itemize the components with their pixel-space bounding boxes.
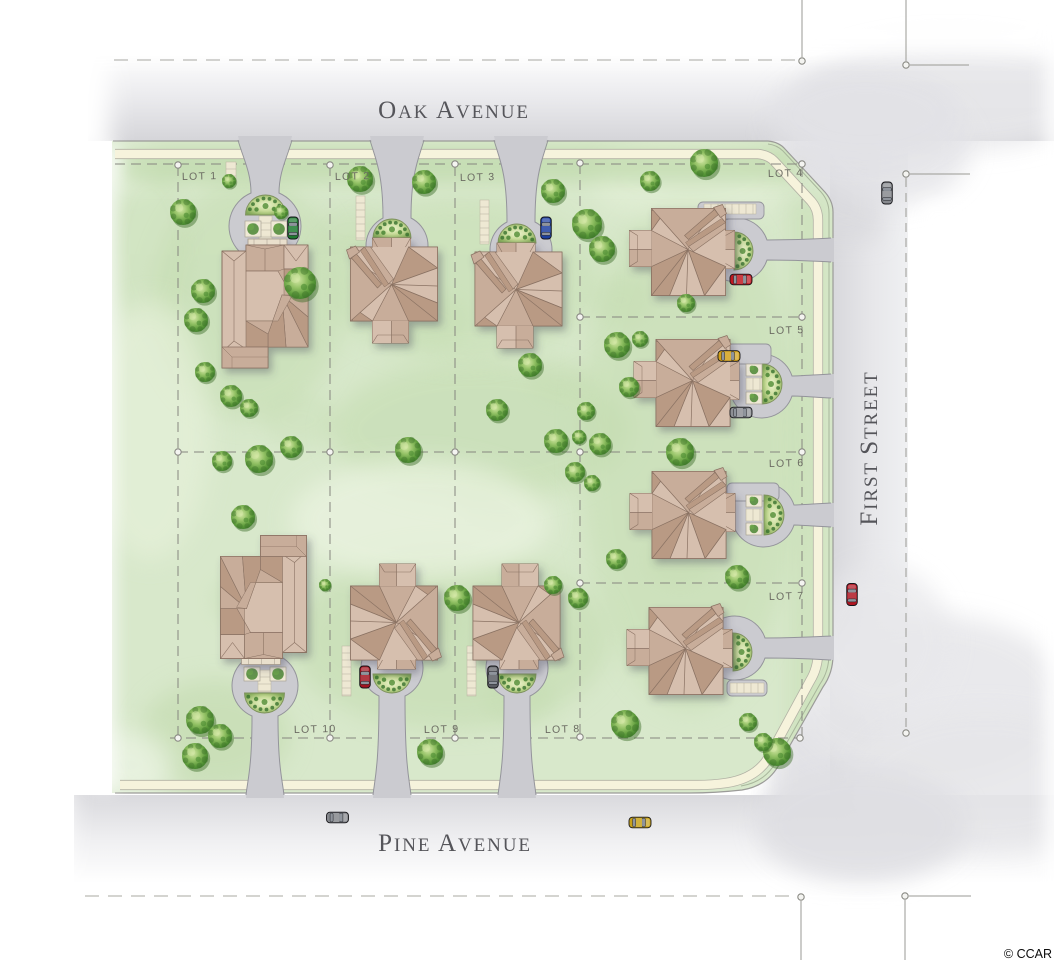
svg-text:LOT 5: LOT 5 <box>769 324 805 337</box>
svg-text:LOT 8: LOT 8 <box>545 723 581 736</box>
svg-text:OAK AVENUE: OAK AVENUE <box>378 97 530 124</box>
svg-text:LOT 1: LOT 1 <box>182 170 218 183</box>
svg-text:FIRST STREET: FIRST STREET <box>856 370 883 525</box>
svg-text:LOT 6: LOT 6 <box>769 457 805 470</box>
svg-text:LOT 7: LOT 7 <box>769 590 805 603</box>
svg-text:LOT 3: LOT 3 <box>460 171 496 184</box>
svg-text:© CCAR: © CCAR <box>1004 947 1052 960</box>
svg-text:PINE AVENUE: PINE AVENUE <box>378 830 532 857</box>
svg-text:LOT 10: LOT 10 <box>294 723 337 736</box>
svg-text:LOT 9: LOT 9 <box>424 723 460 736</box>
svg-text:LOT 4: LOT 4 <box>768 167 804 180</box>
svg-text:LOT 2: LOT 2 <box>335 170 371 183</box>
